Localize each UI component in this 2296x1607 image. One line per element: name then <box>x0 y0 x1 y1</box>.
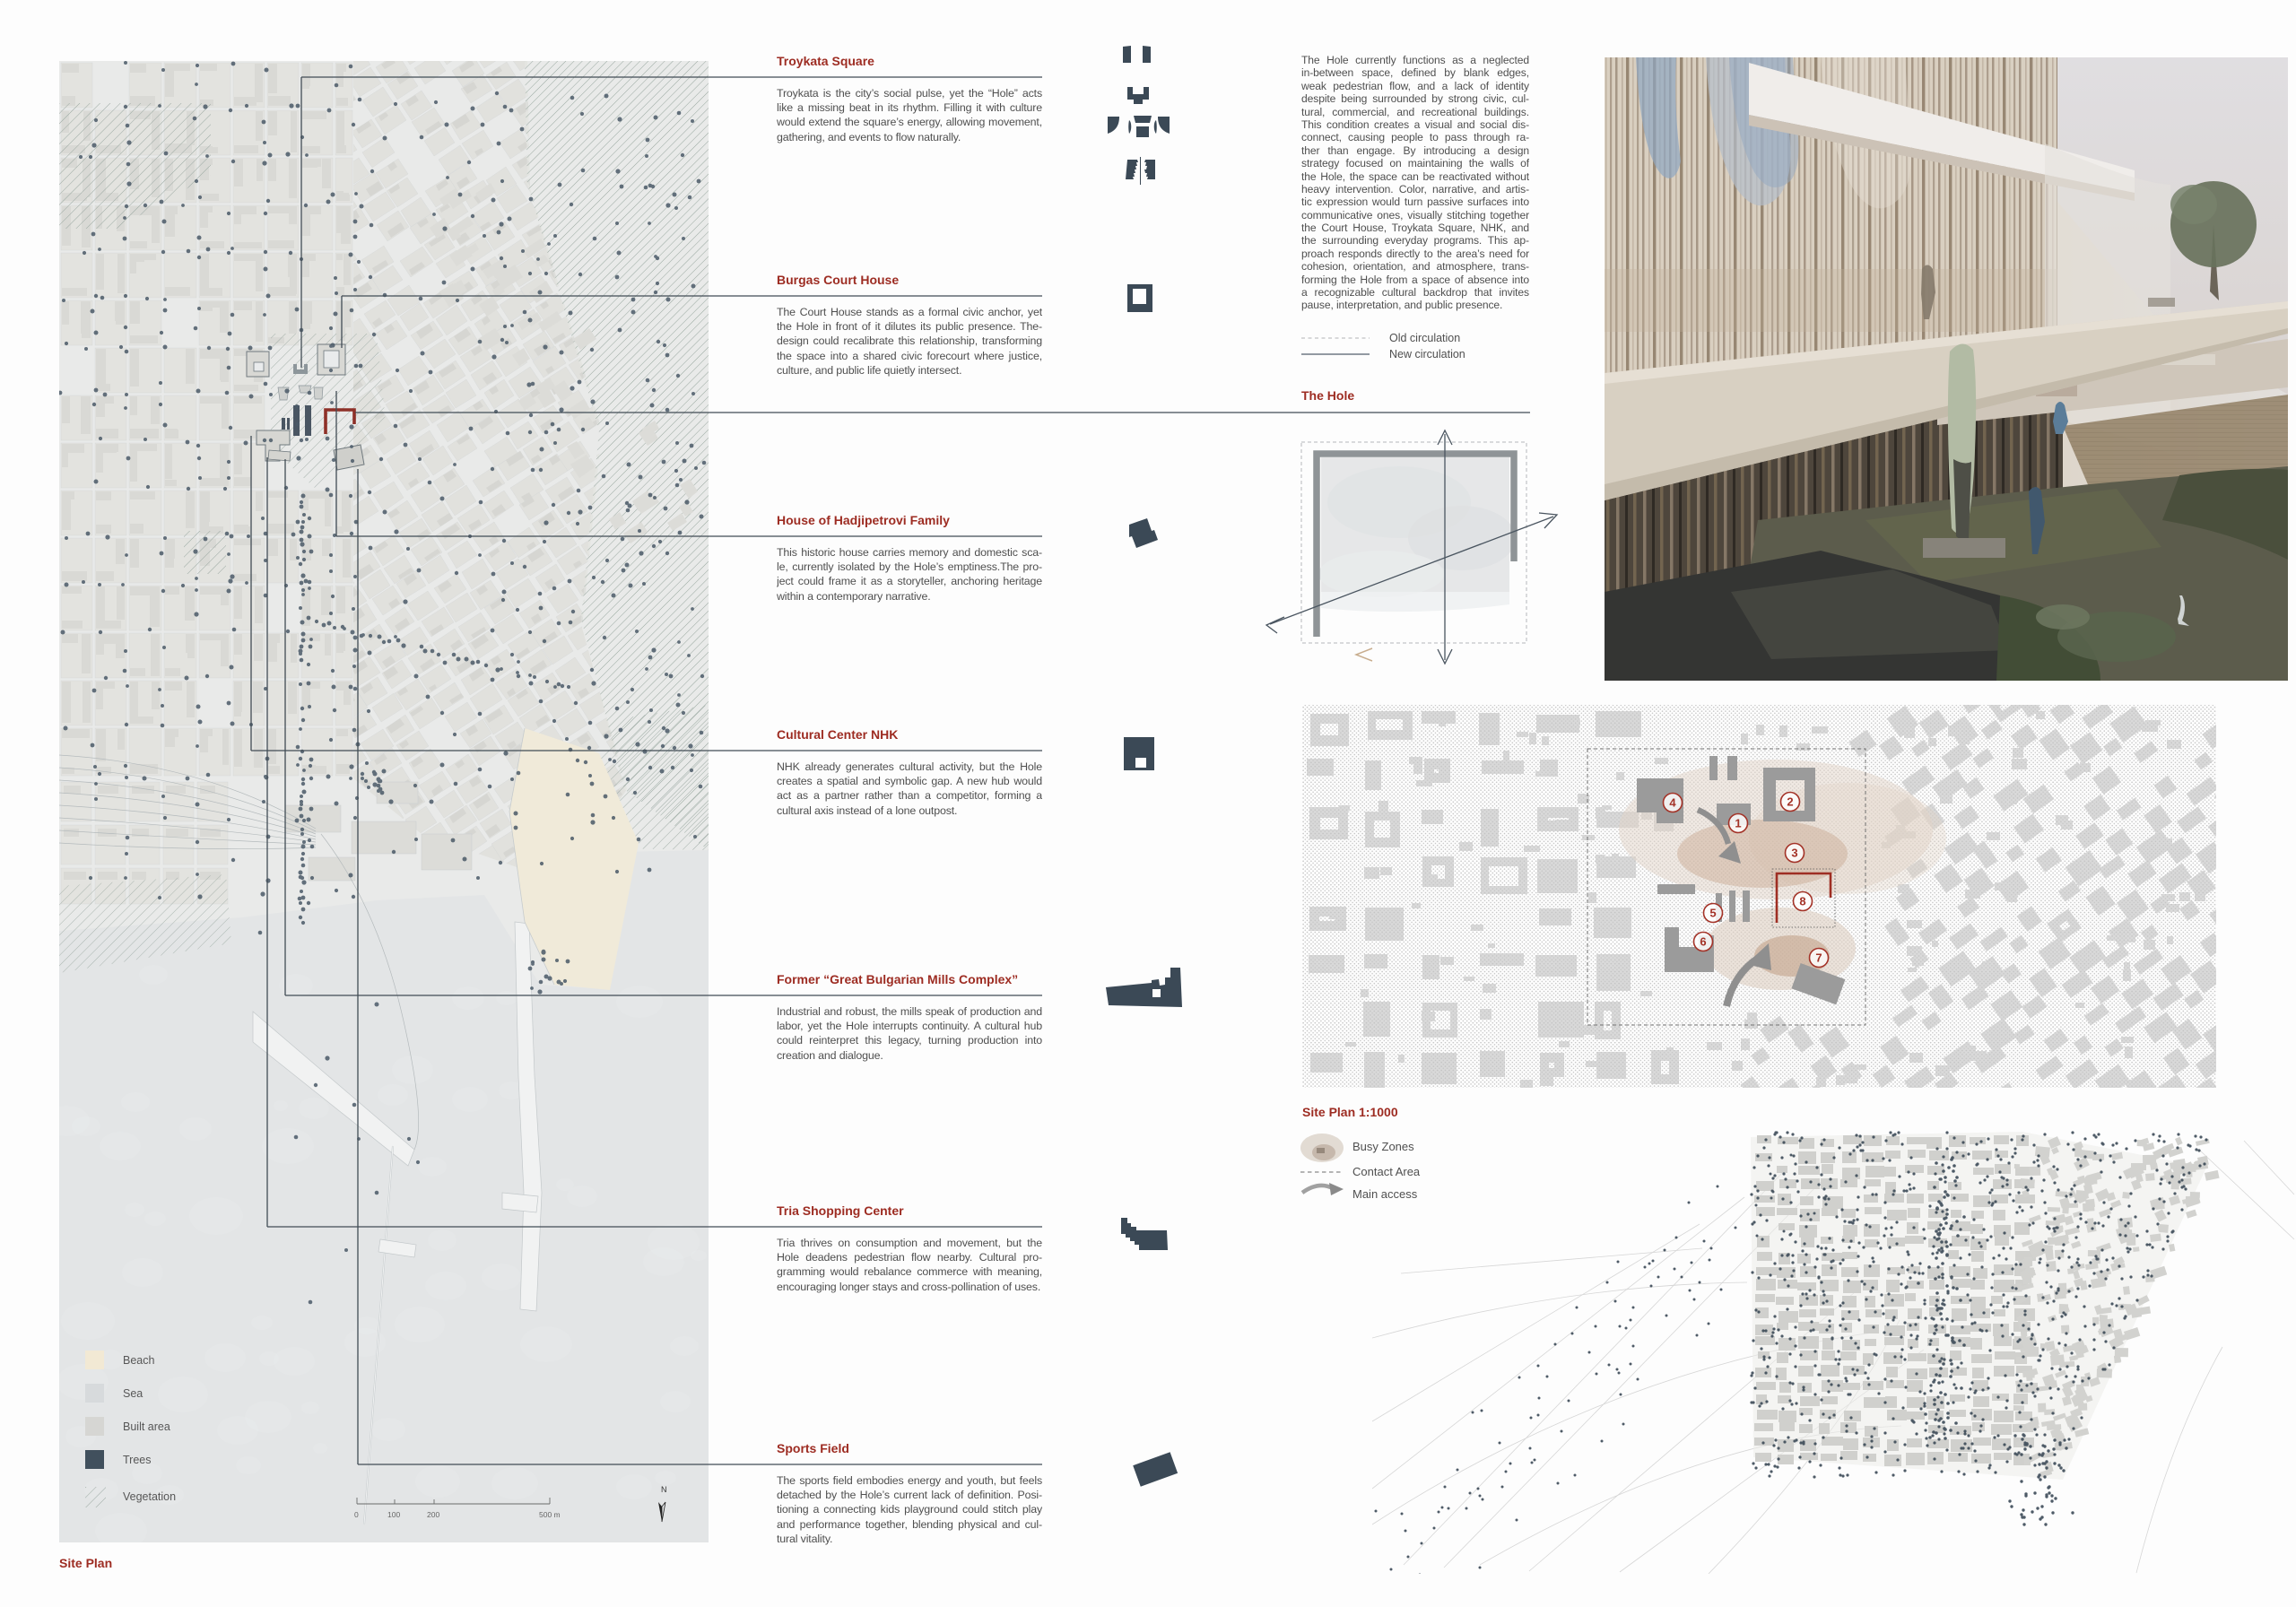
svg-text:3: 3 <box>1791 847 1797 860</box>
svg-text:1: 1 <box>1735 817 1741 830</box>
svg-text:6: 6 <box>1700 935 1706 949</box>
svg-text:2: 2 <box>1787 795 1793 809</box>
svg-text:8: 8 <box>1799 895 1805 908</box>
svg-text:7: 7 <box>1815 951 1822 965</box>
svg-text:5: 5 <box>1709 907 1716 920</box>
svg-text:4: 4 <box>1669 796 1676 810</box>
